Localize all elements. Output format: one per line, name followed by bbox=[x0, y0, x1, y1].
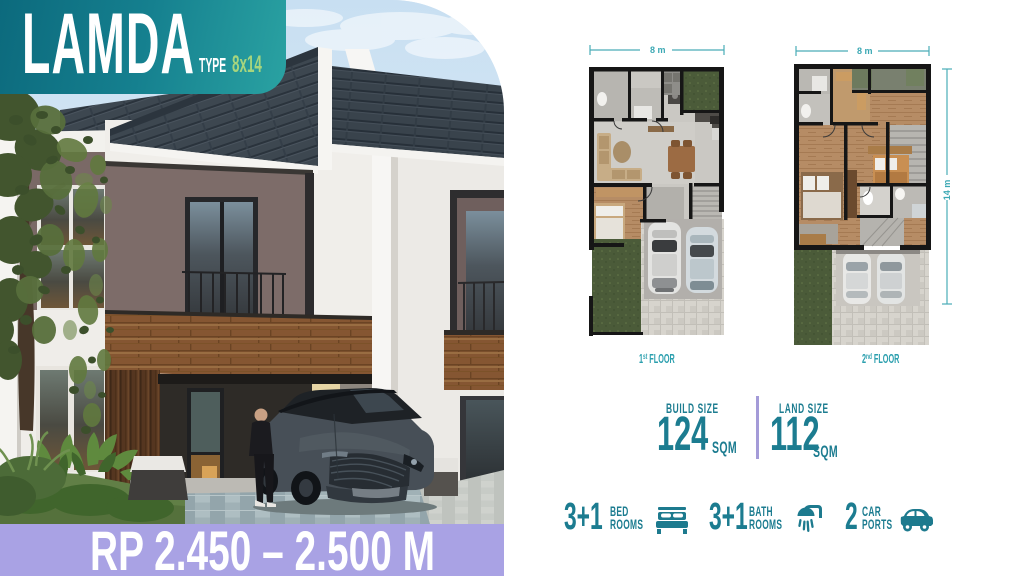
svg-text:8 m: 8 m bbox=[857, 46, 873, 56]
svg-text:8 m: 8 m bbox=[650, 45, 666, 55]
svg-text:14 m: 14 m bbox=[942, 180, 952, 201]
